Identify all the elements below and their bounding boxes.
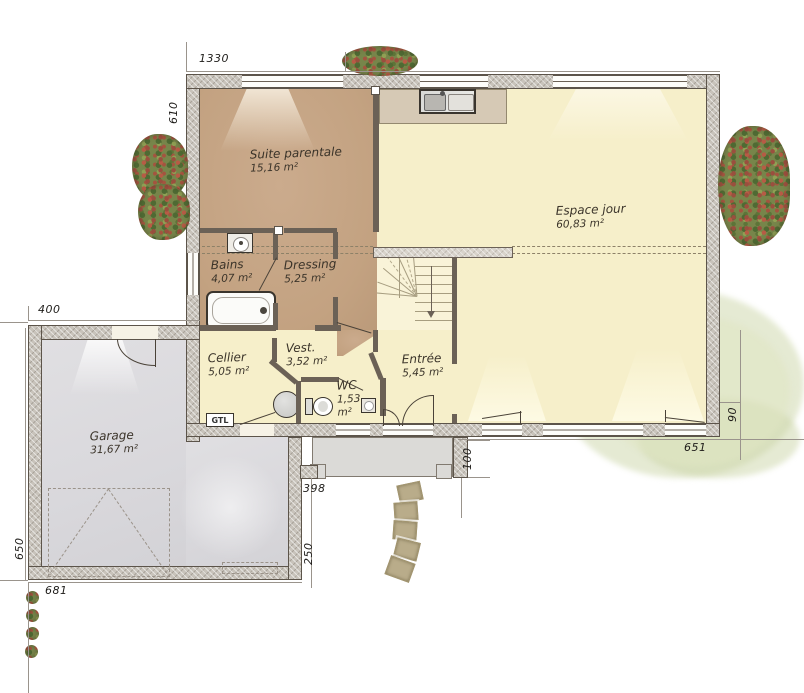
room-area: 5,45 m² [402, 365, 482, 381]
dimension-extension [461, 478, 462, 518]
garage-door-outline [48, 488, 170, 577]
room-area: 4,07 m² [211, 271, 281, 287]
sink-faucet [440, 91, 445, 96]
wall-suite-bains [200, 228, 275, 233]
dimension-extension [28, 306, 29, 321]
toilet-bowl-inner [318, 401, 328, 412]
dimension-label-porch-left: 398 [303, 482, 326, 495]
kitchen-sink [419, 89, 476, 114]
wall-suite-living [373, 89, 379, 232]
garage-rear-door-outline [222, 562, 278, 574]
stair-tread [415, 266, 453, 267]
stair-guard-wall [373, 247, 513, 258]
bathtub-drain [260, 307, 267, 314]
room-label-wc: WC 1,53 m² [336, 377, 371, 419]
room-label-vestibule: Vest. 3,52 m² [286, 339, 357, 370]
window [242, 75, 343, 88]
dimension-extension [0, 322, 28, 323]
dimension-extension [186, 42, 187, 72]
room-label-garage: Garage 31,67 m² [90, 427, 171, 458]
ceiling-break-line [512, 253, 706, 254]
door-post [274, 226, 283, 235]
bay-window [543, 424, 643, 436]
garage-wall-right [288, 437, 302, 580]
wall-entree-living [452, 258, 457, 364]
dimension-extension [468, 477, 490, 478]
wall-dressing-vest [315, 325, 341, 331]
stair-tread [415, 284, 453, 285]
room-label-cellier: Cellier 5,05 m² [208, 349, 279, 380]
wall-vest-entree [373, 330, 378, 352]
room-label-espace-jour: Espace jour 60,83 m² [556, 200, 667, 232]
room-area: 5,25 m² [284, 271, 364, 287]
dimension-label-garage-left: 650 [13, 538, 26, 561]
stair-direction-arrow [427, 311, 435, 318]
tree [718, 126, 790, 246]
porch-slab [312, 437, 453, 477]
stair-tread [415, 293, 453, 294]
stair-tread [399, 258, 400, 298]
garage-floor [186, 437, 288, 566]
dimension-label-garage-top: 400 [38, 303, 61, 316]
property-line [28, 582, 29, 693]
dimension-label-top: 1330 [199, 52, 229, 65]
window [553, 75, 687, 88]
toilet-bowl [313, 397, 333, 416]
window-opening-mark [520, 411, 521, 424]
garage-side-door-opening [112, 326, 158, 339]
tree [138, 184, 190, 240]
dimension-label-right-lower: 90 [726, 407, 739, 422]
staircase [377, 258, 453, 330]
dimension-extension [720, 402, 740, 403]
washbasin [227, 233, 253, 253]
dimension-label-bottom-right: 651 [684, 441, 707, 454]
door-post [371, 86, 380, 95]
cellier-garage-door-opening [240, 424, 274, 436]
room-area: 1,53 m² [337, 392, 372, 419]
dimension-label-porch-right: 100 [461, 448, 474, 471]
dimension-line [186, 71, 720, 72]
stair-tread [415, 320, 453, 321]
room-label-dressing: Dressing 5,25 m² [284, 256, 365, 287]
entrance-door-leaf-left [383, 409, 384, 426]
floor-plan: GTL 1330 610 400 650 681 398 250 100 651… [0, 0, 804, 693]
dimension-line [28, 320, 200, 321]
stair-tread [415, 302, 453, 303]
window-opening-mark [665, 410, 666, 422]
dimension-extension [468, 440, 490, 441]
shrub [25, 645, 38, 658]
dimension-line [458, 439, 720, 440]
wall-dressing-right [333, 232, 338, 259]
ceiling-break-line [202, 253, 373, 254]
dimension-label-porch-lower: 250 [302, 543, 315, 566]
dimension-extension [0, 580, 28, 581]
garage-wall-left [28, 325, 42, 580]
dimension-extension [345, 52, 346, 72]
stair-tread [415, 275, 453, 276]
window [336, 424, 370, 436]
dimension-label-left-upper: 610 [167, 102, 180, 125]
window [420, 75, 488, 88]
exterior-wall-right [706, 74, 720, 437]
window [665, 424, 706, 436]
dimension-extension [720, 439, 804, 440]
toilet-tank [305, 398, 313, 415]
gtl-label: GTL [212, 416, 229, 425]
dimension-line [740, 330, 741, 460]
room-label-entree: Entrée 5,45 m² [402, 350, 483, 381]
window [482, 424, 522, 436]
stepping-stone [393, 501, 418, 522]
room-name: WC [336, 377, 371, 393]
wall-suite-dressing [284, 228, 337, 233]
garage-side-door-leaf [155, 339, 156, 367]
room-area: 5,05 m² [208, 364, 278, 380]
stepping-stone [392, 520, 417, 541]
ceiling-break-line [512, 246, 706, 247]
entrance-door-leaf-right [433, 395, 434, 426]
porch-step [436, 464, 452, 479]
dimension-line [28, 582, 302, 583]
wall-wc-top [301, 377, 339, 382]
stair-direction-line [431, 266, 432, 312]
room-area: 31,67 m² [90, 442, 170, 458]
sink-basin [424, 94, 446, 111]
wall-entree-stub [452, 414, 457, 423]
room-area: 3,52 m² [286, 354, 356, 370]
washbasin-drain [239, 241, 243, 245]
sink-drainer [448, 94, 474, 111]
wall-bains-cellier [200, 325, 276, 331]
porch-notch-wall [300, 465, 318, 479]
wall-wc-left [296, 381, 301, 423]
dimension-label-garage-bottom: 681 [45, 584, 68, 597]
window [187, 253, 199, 295]
room-label-bains: Bains 4,07 m² [211, 256, 282, 287]
room-label-suite-parentale: Suite parentale 15,16 m² [250, 144, 346, 175]
gtl-box: GTL [206, 413, 234, 427]
